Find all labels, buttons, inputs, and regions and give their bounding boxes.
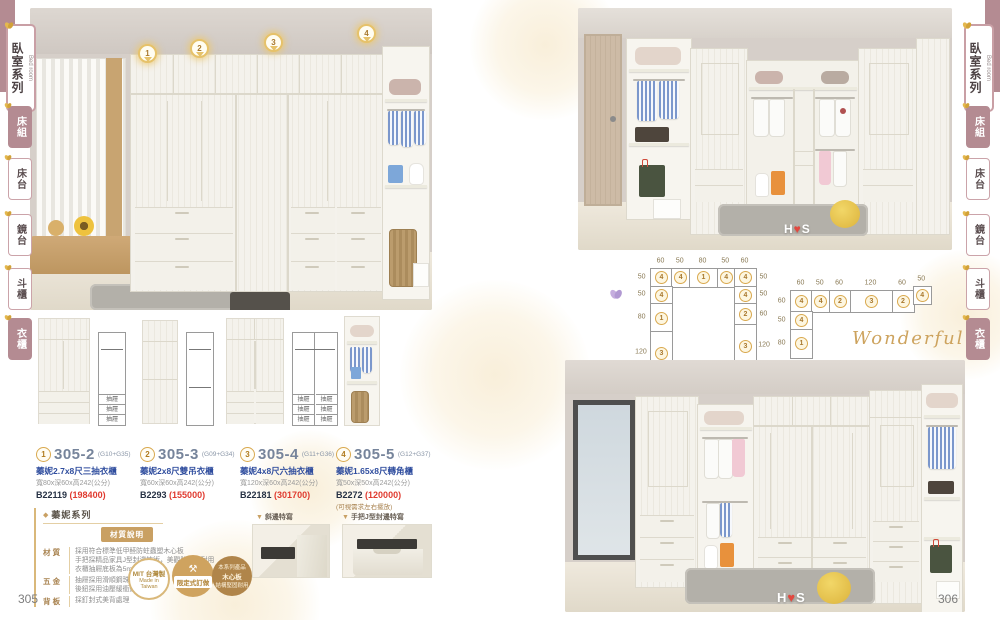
product-number-badge: 2 [140, 447, 155, 462]
product-size: 寬120x深60x高242(公分) [240, 478, 344, 488]
room-photo-walkin-top: H♥S [578, 8, 952, 250]
mit-taiwan-badge: MIT 台灣製 Made in Taiwan [128, 558, 170, 600]
sidebar-tab-bed-frame-left[interactable]: 床台 [8, 158, 32, 200]
hs-letters: H♥S [777, 590, 806, 605]
tab-label: 床台 [971, 168, 986, 190]
sidebar-tab-vanity-right[interactable]: 鏡台 [966, 214, 990, 256]
product-code-suffix: (G12+G37) [398, 451, 431, 458]
tab-label: 床台 [13, 168, 28, 190]
marker-pin-2[interactable]: 2 [190, 39, 209, 58]
spec-row-backpanel: 背 板 採釘封式美背處理 [43, 596, 229, 607]
tab-label: 斗櫃 [13, 278, 28, 300]
butterfly-icon [962, 154, 970, 162]
product-number-badge: 1 [36, 447, 51, 462]
product-sku-price: B22119 (198400) [36, 490, 140, 500]
product-sku-price: B22181 (301700) [240, 490, 344, 500]
heart-icon: ♥ [787, 590, 796, 605]
spec-header-badge: 材質說明 [101, 527, 153, 542]
product-model: 305-4 [258, 446, 299, 463]
room-door [584, 34, 622, 206]
product-card-4: 4305-5(G12+G37) 蓁妮1.65x8尺轉角櫃 寬50x深50x高24… [336, 446, 440, 511]
sidebar-tab-bed-frame-right[interactable]: 床台 [966, 158, 990, 200]
product-model: 305-5 [354, 446, 395, 463]
product-card-2: 2305-3(G09+G34) 蓁妮2x8尺雙吊衣櫃 寬60x深60x高242(… [140, 446, 244, 500]
catalog-spread: 臥室系列 Bed room 床組 床台 鏡台 斗櫃 衣櫃 臥室系列 Bed ro… [0, 0, 1000, 620]
butterfly-icon [4, 21, 14, 31]
product-name: 蓁妮2.7x8尺三抽衣櫃 [36, 465, 140, 477]
butterfly-icon [4, 210, 12, 218]
product-size: 寬80x深60x高242(公分) [36, 478, 140, 488]
butterfly-icon [962, 210, 970, 218]
series-title: 臥室系列 [9, 42, 26, 94]
detail-label-handle: ▼手把J型封邊特寫 [342, 512, 404, 522]
tab-label: 床組 [13, 116, 28, 138]
butterfly-icon [962, 21, 972, 31]
thumb-photo-product-2 [142, 320, 178, 424]
product-number-badge: 4 [336, 447, 351, 462]
diamond-icon: ◆ [43, 511, 48, 519]
triangle-icon: ▼ [342, 514, 349, 521]
series-card-right[interactable]: 臥室系列 Bed room [964, 24, 994, 112]
product-code-suffix: (G10+G35) [98, 451, 131, 458]
product-name: 蓁妮2x8尺雙吊衣櫃 [140, 465, 244, 477]
tab-label: 衣櫃 [971, 328, 986, 350]
thumb-photo-product-4 [344, 316, 380, 426]
marker-pin-4[interactable]: 4 [357, 24, 376, 43]
butterfly-icon [4, 264, 12, 272]
sidebar-tab-bed-set-right[interactable]: 床組 [966, 106, 990, 148]
page-number-left: 305 [18, 592, 38, 606]
sidebar-tab-vanity-left[interactable]: 鏡台 [8, 214, 32, 256]
series-subtitle: Bed room [985, 55, 991, 81]
purple-butterfly-icon [608, 288, 624, 302]
product-name: 蓁妮1.65x8尺轉角櫃 [336, 465, 440, 477]
sidebar-tab-bed-set-left[interactable]: 床組 [8, 106, 32, 148]
butterfly-icon [962, 102, 970, 110]
sidebar-tab-chest-left[interactable]: 斗櫃 [8, 268, 32, 310]
product-card-1: 1305-2(G10+G35) 蓁妮2.7x8尺三抽衣櫃 寬80x深60x高24… [36, 446, 140, 500]
room-photo-walkin-bottom: H♥S [565, 360, 965, 612]
tab-label: 鏡台 [13, 224, 28, 246]
tab-label: 衣櫃 [13, 328, 28, 350]
product-size: 寬50x深50x高242(公分) [336, 478, 440, 488]
product-model: 305-2 [54, 446, 95, 463]
product-code-suffix: (G09+G34) [202, 451, 235, 458]
thumb-diagram-product-3: 抽屜 抽屜 抽屜 抽屜 抽屜 抽屜 [292, 332, 338, 426]
marker-pin-1[interactable]: 1 [138, 44, 157, 63]
butterfly-icon [4, 314, 12, 322]
product-code-suffix: (G11+G36) [302, 451, 334, 458]
butterfly-icon [4, 154, 12, 162]
tab-label: 鏡台 [971, 224, 986, 246]
product-sku-price: B2272 (120000) [336, 490, 440, 500]
product-name: 蓁妮4x8尺六抽衣櫃 [240, 465, 344, 477]
detail-label-bevel: ▼斜邊特寫 [256, 512, 293, 522]
product-model: 305-3 [158, 446, 199, 463]
product-card-3: 3305-4(G11+G36) 蓁妮4x8尺六抽衣櫃 寬120x深60x高242… [240, 446, 344, 500]
sidebar-tab-chest-right[interactable]: 斗櫃 [966, 268, 990, 310]
sidebar-tab-wardrobe-left[interactable]: 衣櫃 [8, 318, 32, 360]
tab-label: 斗櫃 [971, 278, 986, 300]
thumb-diagram-product-2 [186, 332, 214, 426]
tab-label: 床組 [971, 116, 986, 138]
series-card-left[interactable]: 臥室系列 Bed room [6, 24, 36, 112]
room-photo-main: 1 2 3 4 [30, 8, 432, 310]
page-number-right: 306 [938, 592, 958, 606]
board-material-badge: 本系列產品 木心板 結構堅固耐用 [212, 556, 252, 596]
series-title: 臥室系列 [967, 42, 984, 94]
product-number-badge: 3 [240, 447, 255, 462]
hs-letters: H♥S [784, 222, 811, 236]
sidebar-tab-wardrobe-right[interactable]: 衣櫃 [966, 318, 990, 360]
floor-plan-diagram-l: 442324416050601206050605080 [790, 290, 940, 360]
heart-icon: ♥ [794, 222, 802, 236]
thumb-photo-product-3 [226, 318, 284, 424]
thumb-photo-product-1 [38, 318, 90, 424]
detail-photo-bevel [252, 524, 330, 578]
butterfly-icon [4, 102, 12, 110]
detail-photo-handle [342, 524, 432, 578]
thumb-diagram-product-1: 抽屜 抽屜 抽屜 [98, 332, 126, 426]
butterfly-icon [962, 314, 970, 322]
product-size: 寬60x深60x高242(公分) [140, 478, 244, 488]
product-sku-price: B2293 (155000) [140, 490, 244, 500]
hammer-icon: ⚒ [189, 565, 198, 575]
marker-pin-3[interactable]: 3 [264, 33, 283, 52]
butterfly-icon [962, 264, 970, 272]
triangle-icon: ▼ [256, 514, 263, 521]
spec-series-title: 蓁妮系列 [51, 508, 91, 521]
custom-made-badge: ⚒ 限定式訂做 [172, 555, 214, 597]
wonderful-script: Wonderful [852, 328, 965, 349]
series-subtitle: Bed room [27, 55, 33, 81]
product-note: (可視需求左右擺放) [336, 501, 440, 511]
